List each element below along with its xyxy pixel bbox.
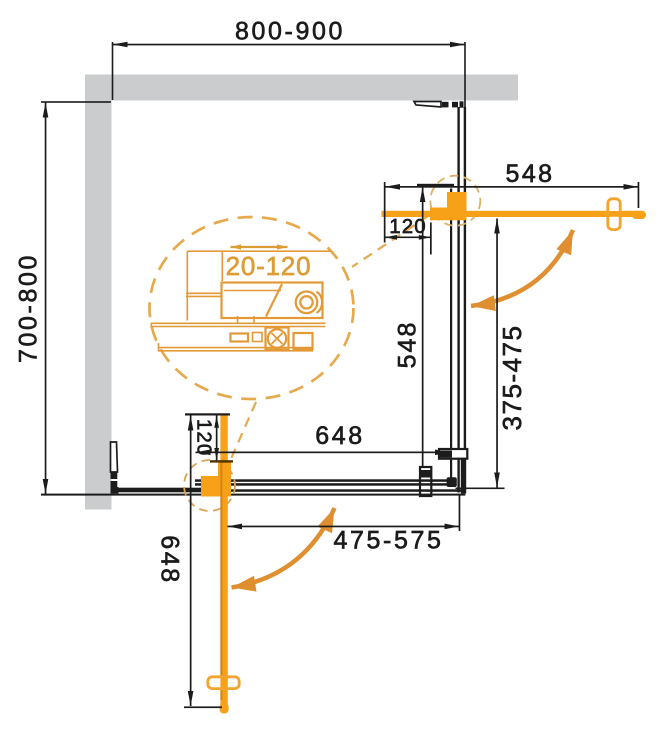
svg-text:20-120: 20-120 [226,251,312,281]
svg-text:475-575: 475-575 [334,527,444,555]
svg-text:648: 648 [315,422,365,450]
svg-text:375-475: 375-475 [497,325,527,431]
svg-text:700-800: 700-800 [15,253,43,363]
svg-text:120: 120 [389,215,427,238]
svg-text:548: 548 [394,321,422,369]
svg-text:800-900: 800-900 [235,17,345,45]
svg-text:648: 648 [155,535,183,585]
svg-text:548: 548 [506,160,555,188]
